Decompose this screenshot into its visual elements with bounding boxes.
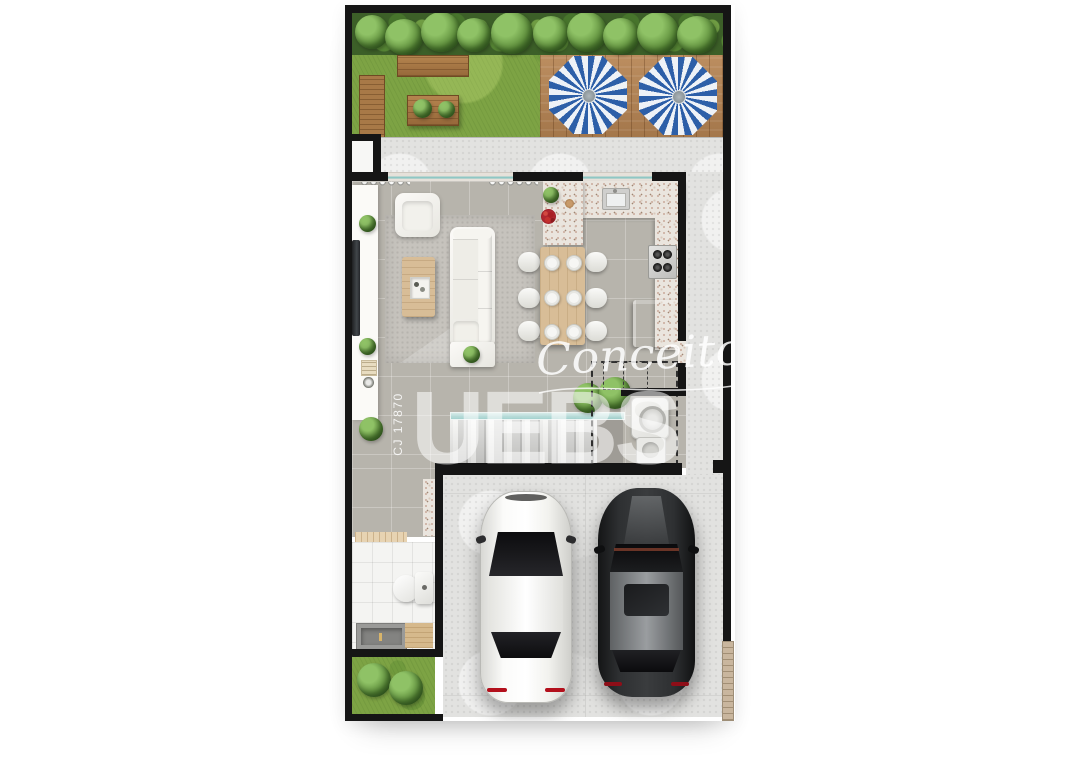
dining-chair xyxy=(518,321,540,341)
place-setting-icon xyxy=(544,324,560,340)
hedge-bush xyxy=(421,12,461,52)
car-mirror-icon xyxy=(593,544,606,554)
side-table xyxy=(450,342,495,367)
side-yard xyxy=(686,172,723,475)
tank-basin xyxy=(642,442,659,458)
taillight-icon xyxy=(671,682,689,686)
potted-plant xyxy=(413,99,432,118)
floor-plan: Conceito UEBS CJ 17870 xyxy=(345,5,735,721)
flower-vase-icon xyxy=(541,209,556,224)
car-mirror-icon xyxy=(475,535,487,545)
slab-joint xyxy=(443,493,723,494)
place-setting-icon xyxy=(544,255,560,271)
hedge-bush xyxy=(533,16,569,52)
potted-plant xyxy=(438,101,455,118)
floor-plant xyxy=(359,417,383,441)
page-canvas: Conceito UEBS CJ 17870 xyxy=(0,0,1080,764)
perimeter-wall-top xyxy=(345,5,731,13)
coffee-table xyxy=(402,257,435,317)
taillight-icon xyxy=(487,688,507,692)
side-gate xyxy=(722,641,734,721)
staircase xyxy=(450,417,597,465)
faucet-icon xyxy=(379,633,382,641)
kitchen-counter-top xyxy=(583,181,686,218)
planter-bench xyxy=(397,55,469,77)
perimeter-wall-left xyxy=(345,5,352,716)
faucet-icon xyxy=(613,189,617,193)
hedge-bush xyxy=(603,18,639,54)
laundry-cabinet-outline xyxy=(603,361,624,390)
armchair-seat xyxy=(402,201,433,231)
slab-joint xyxy=(585,475,586,717)
sofa-seat xyxy=(453,239,478,319)
car-rear-window xyxy=(491,632,561,658)
car-rear-window xyxy=(612,650,681,672)
garden-bush xyxy=(389,671,423,705)
hedge-bush xyxy=(385,19,423,55)
rear-left-wall xyxy=(345,714,443,721)
bathroom-bottom-wall xyxy=(345,649,443,657)
place-setting-icon xyxy=(544,290,560,306)
slab-joint xyxy=(443,695,723,696)
place-setting-icon xyxy=(566,324,582,340)
perimeter-wall-right xyxy=(723,5,731,645)
side-table-plant xyxy=(463,346,480,363)
toilet-tank xyxy=(415,572,433,604)
dashboard-reflection xyxy=(614,548,679,551)
parasol-pole xyxy=(672,90,686,104)
car-hood-shine xyxy=(624,496,669,544)
decor-item-icon xyxy=(363,377,374,388)
tray-decor-icon xyxy=(414,282,419,287)
place-setting-icon xyxy=(566,255,582,271)
bath-counter-wood xyxy=(405,623,433,648)
hedge-bush xyxy=(567,12,607,52)
hedge-bush xyxy=(355,15,389,49)
car-windshield xyxy=(489,532,563,576)
burner-icon xyxy=(653,250,662,259)
flush-button-icon xyxy=(422,585,427,590)
dining-chair xyxy=(518,288,540,308)
kitchen-sink-icon xyxy=(602,188,630,210)
car-sunroof xyxy=(624,584,669,616)
garden-bush xyxy=(357,663,391,697)
hedge-bush xyxy=(637,12,679,54)
book-stack-icon xyxy=(361,360,377,376)
sofa xyxy=(450,227,495,348)
laundry-wall xyxy=(621,388,686,396)
sofa-armrest xyxy=(453,229,492,239)
entry-niche xyxy=(352,138,373,172)
counter-plant xyxy=(543,187,559,203)
kitchen-side-window-sill xyxy=(678,341,686,363)
cooktop-icon xyxy=(648,245,677,279)
facade-wall xyxy=(513,172,583,181)
sink-basin xyxy=(606,193,626,207)
refrigerator-icon xyxy=(633,300,678,347)
washer-door-icon xyxy=(639,406,666,433)
dining-chair xyxy=(585,288,607,308)
taillight-icon xyxy=(604,682,622,686)
burner-icon xyxy=(653,263,662,272)
car-roof xyxy=(489,576,563,632)
hedge-bush xyxy=(677,16,717,54)
garage-front-wall xyxy=(435,463,682,475)
walkway xyxy=(352,137,723,173)
tray-decor-icon xyxy=(420,287,425,292)
burner-icon xyxy=(663,263,672,272)
console-plant xyxy=(359,215,376,232)
tv-icon xyxy=(352,240,360,336)
armchair xyxy=(395,193,440,237)
hedge-bush xyxy=(491,12,533,54)
hall-right-wall xyxy=(435,468,443,653)
hedge-bush xyxy=(457,18,491,52)
dining-chair xyxy=(585,252,607,272)
door-threshold xyxy=(355,532,407,542)
bowl-icon xyxy=(565,199,574,208)
console-plant xyxy=(359,338,376,355)
parasol-pole xyxy=(582,89,596,103)
car-grille xyxy=(505,494,547,501)
dining-chair xyxy=(518,252,540,272)
side-yard-stub-wall xyxy=(713,460,731,473)
garden-bench xyxy=(359,75,385,141)
sofa-back-cushions xyxy=(478,230,492,345)
white-car-icon xyxy=(480,491,572,703)
washing-machine-icon xyxy=(631,397,669,439)
laundry-cabinet-outline xyxy=(623,361,648,390)
curtain-icon xyxy=(488,182,538,190)
kitchen-right-wall xyxy=(678,172,686,341)
place-setting-icon xyxy=(566,290,582,306)
burner-icon xyxy=(663,250,672,259)
dark-car-icon xyxy=(598,488,695,697)
bathroom-sink-icon xyxy=(356,623,407,650)
laundry-tank-icon xyxy=(636,437,666,465)
taillight-icon xyxy=(545,688,565,692)
niche-wall xyxy=(373,134,381,172)
dining-chair xyxy=(585,321,607,341)
